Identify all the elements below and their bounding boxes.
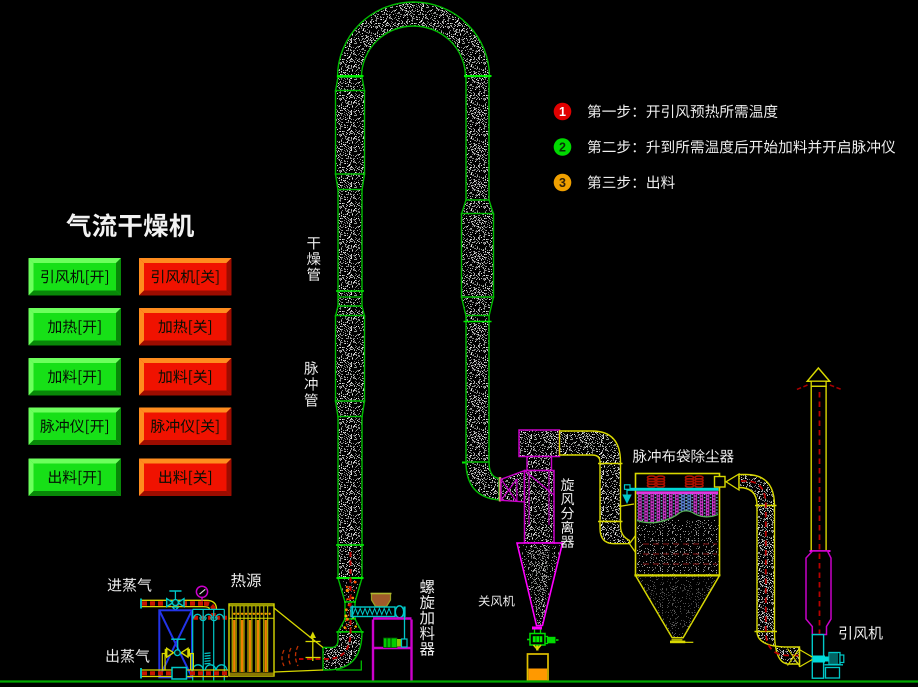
svg-text:1: 1: [559, 105, 566, 119]
svg-text:2: 2: [559, 140, 566, 154]
svg-text:3: 3: [559, 176, 566, 190]
